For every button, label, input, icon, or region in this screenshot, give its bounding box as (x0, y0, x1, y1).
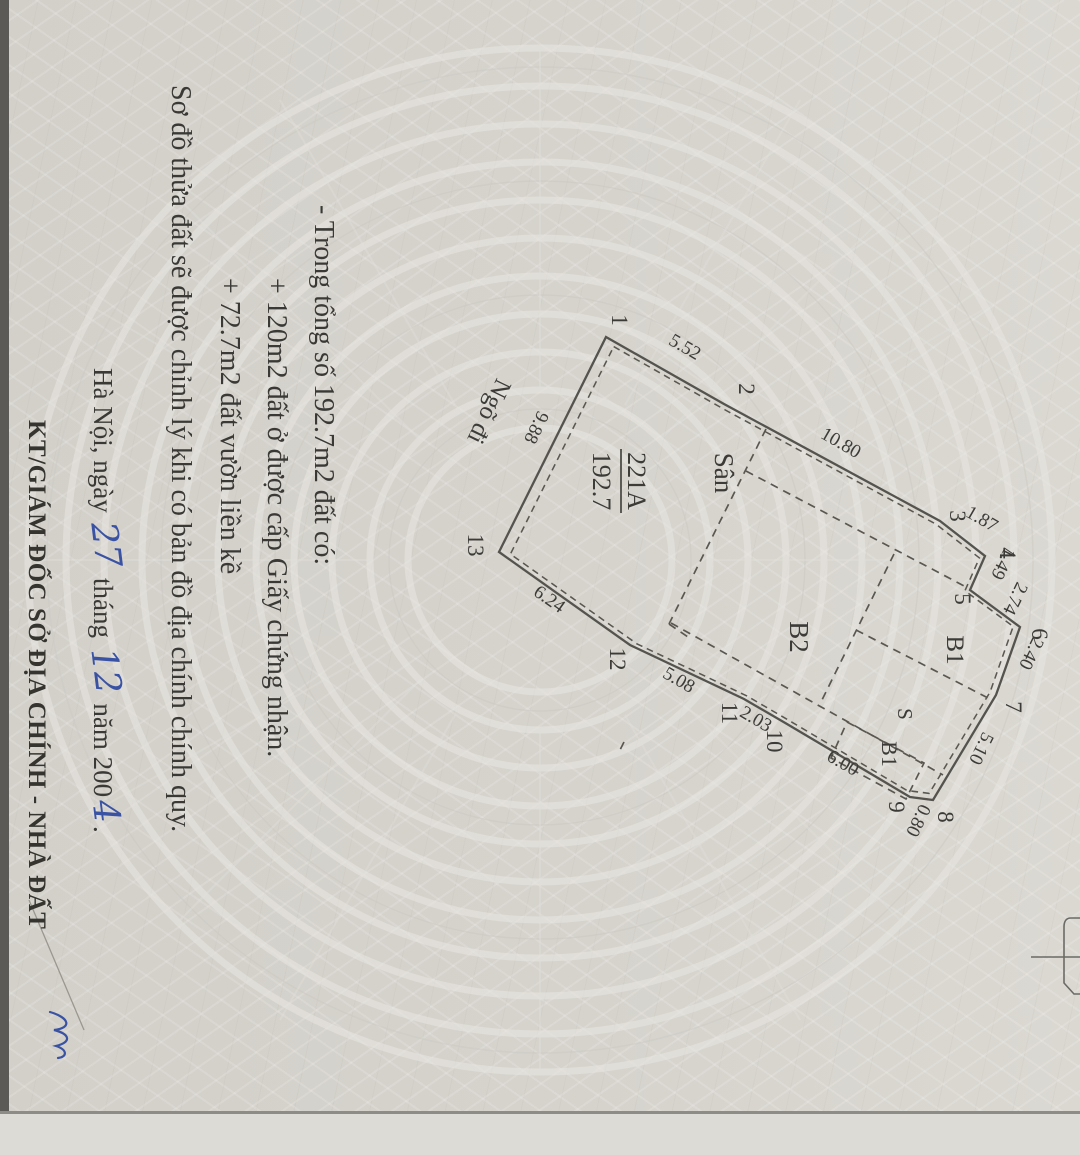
date-month-word: tháng (88, 578, 118, 638)
date-prefix: Hà Nội, ngày (88, 368, 118, 513)
edge-lengths: 5.52 10.80 1.87 1.49 2.74 2.40 5.10 0.80… (519, 330, 1047, 840)
parcel-id: 221A (622, 452, 651, 510)
label-b2: B2 (784, 621, 814, 653)
label-s: S (893, 708, 917, 720)
vertex-label: 12 (605, 648, 630, 671)
date-period: . (88, 826, 118, 833)
vertex-numbers: 1 2 3 4 5 6 7 8 9 10 11 12 13 (463, 314, 1052, 823)
plot-boundary-inner-dashed (510, 347, 1013, 794)
label-alley: Ngõ đi (462, 374, 516, 448)
label-san: Sân (709, 453, 739, 494)
edge-length: 5.08 (659, 663, 698, 698)
scanned-document-page: 1 2 3 4 5 6 7 8 9 10 11 12 13 5.52 10.80… (0, 0, 1080, 1155)
handwritten-year-digit: 4 (104, 800, 107, 823)
vertex-label: 9 (884, 801, 909, 813)
guilloche-watermark (0, 0, 1080, 1155)
signature-flourish (50, 1012, 67, 1058)
page-fold-line (0, 1111, 1080, 1114)
footer-note: Sơ đồ thửa đất sẽ được chỉnh lý khi có b… (164, 85, 196, 832)
building-outlines (619, 429, 992, 799)
edge-length: 6.00 (823, 746, 862, 781)
vertex-label: 5 (950, 593, 975, 605)
handwritten-month: 12 (102, 648, 108, 693)
vertex-label: 3 (945, 510, 970, 522)
edge-length: 2.74 (998, 579, 1032, 619)
note-residential: + 120m2 đất ở được cấp Giấy chứng nhận. (253, 278, 300, 757)
handwritten-day: 27 (102, 523, 108, 568)
edge-length: 10.80 (817, 423, 865, 463)
note-garden: + 72.7m2 đất vườn liền kề (206, 278, 253, 757)
edge-length: 0.80 (901, 801, 934, 840)
edge-length: 1.87 (962, 502, 1001, 537)
vertex-label: 6 (1027, 628, 1052, 640)
vertex-label: 8 (933, 811, 958, 823)
vertex-label: 2 (734, 383, 759, 395)
scan-edge-shadow (0, 0, 9, 1113)
edge-length: 1.49 (986, 544, 1019, 583)
vertex-label: 13 (463, 534, 488, 557)
edge-length: 9.88 (519, 408, 552, 447)
vertex-label: 1 (607, 314, 632, 326)
note-total: - Trong tổng số 192.7m2 đất có: (308, 205, 339, 565)
document-canvas: 1 2 3 4 5 6 7 8 9 10 11 12 13 5.52 10.80… (0, 0, 1080, 1155)
edge-length: 2.40 (1014, 634, 1047, 673)
parcel-diagram: 1 2 3 4 5 6 7 8 9 10 11 12 13 5.52 10.80… (0, 0, 1080, 1155)
edge-length: 5.10 (964, 729, 997, 768)
date-line: Hà Nội, ngày 27 tháng 12 năm 2004. (87, 368, 118, 833)
land-summary-notes: - Trong tổng số 192.7m2 đất có: + 120m2 … (206, 205, 347, 757)
off-page-area (0, 1114, 1080, 1155)
edge-length: 2.03 (736, 702, 775, 737)
signer-title: KT/GIÁM ĐỐC SỞ ĐỊA CHÍNH - NHÀ ĐẤT (22, 420, 50, 929)
label-b1-small: B1 (877, 741, 902, 767)
vertex-label: 11 (717, 702, 742, 724)
parcel-id-area: 221A 192.7 (587, 449, 651, 513)
plot-boundary (499, 337, 1020, 800)
vertex-label: 7 (1001, 701, 1026, 713)
parcel-area: 192.7 (587, 452, 616, 511)
label-b1: B1 (941, 635, 968, 664)
edge-length: 5.52 (665, 330, 704, 365)
date-year-prefix: năm 200 (88, 703, 118, 797)
vertex-label: 10 (762, 730, 787, 753)
vertex-label: 4 (995, 547, 1020, 559)
corner-mark (1031, 918, 1080, 994)
edge-length: 6.24 (530, 581, 570, 618)
